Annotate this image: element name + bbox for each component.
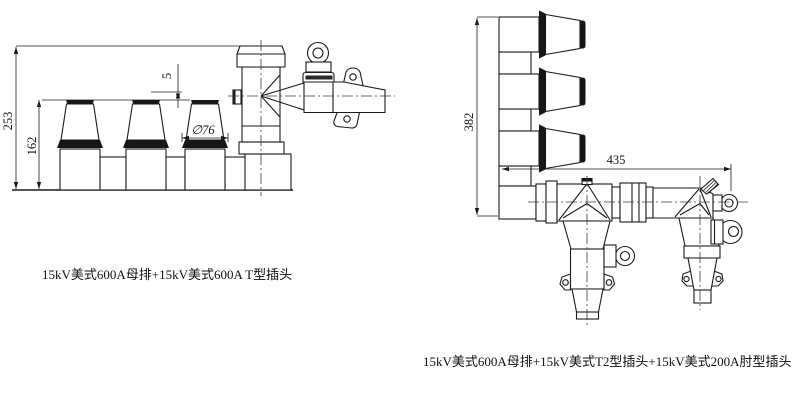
right-bushing-1	[539, 11, 586, 59]
dim-label-dia76: ∅76	[191, 123, 215, 137]
dim-label-5: 5	[160, 73, 174, 79]
left-tee-plug-barrel	[304, 82, 385, 113]
right-caption: 15kV美式600A母排+15kV美式T2型插头+15kV美式200A肘型插头	[423, 354, 792, 369]
left-dim-overall-height: 253	[1, 47, 18, 189]
left-bushing-1	[57, 100, 103, 148]
right-view: 382 435 15kV美式600A母排+15kV美式T2型插头+15kV美式2…	[423, 11, 792, 370]
left-dim-offset: 5	[160, 64, 180, 108]
left-busbar-base	[60, 149, 248, 190]
dim-label-382: 382	[462, 113, 476, 132]
left-extension-lines	[16, 46, 241, 100]
left-bushing-2	[123, 100, 169, 148]
left-caption: 15kV美式600A母排+15kV美式600A T型插头	[42, 267, 292, 282]
left-eyebolt	[303, 43, 334, 83]
dim-label-435: 435	[607, 153, 626, 167]
right-t2-plug	[560, 221, 635, 319]
right-busbar	[499, 17, 539, 219]
left-view: 253 162 5 ∅76 15kV美式600A母排+15kV美式60	[1, 40, 395, 282]
right-plug-assembly	[536, 179, 713, 224]
right-bushing-3	[539, 125, 586, 173]
left-dim-bushing-height: 162	[25, 100, 41, 189]
dim-label-162: 162	[25, 137, 39, 156]
right-dim-height: 382	[462, 18, 479, 215]
right-bushing-2	[539, 68, 586, 116]
drawing-canvas: 253 162 5 ∅76 15kV美式600A母排+15kV美式60	[0, 0, 800, 400]
drawing-sheet: 253 162 5 ∅76 15kV美式600A母排+15kV美式60	[0, 0, 800, 400]
dim-label-253: 253	[1, 112, 15, 131]
